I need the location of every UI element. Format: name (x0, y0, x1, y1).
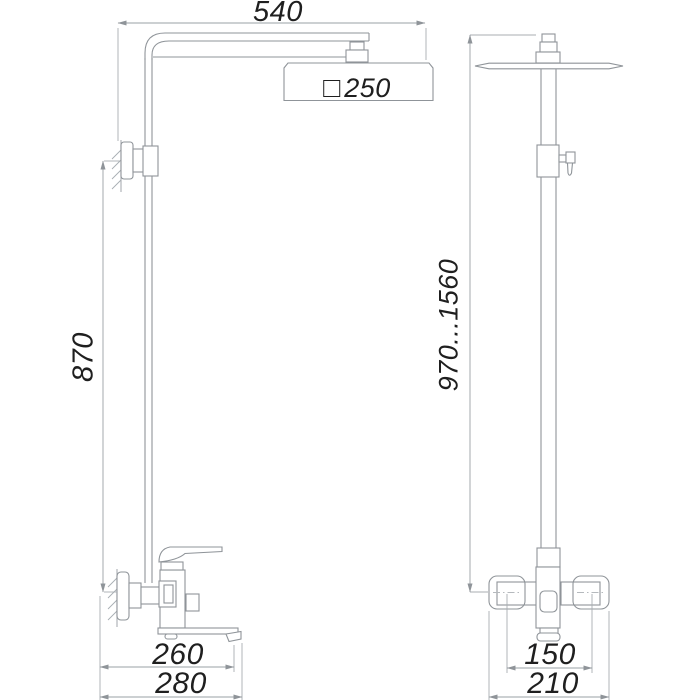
side-riser-pipe (541, 63, 556, 548)
dim-label-column-height: 870 (70, 332, 99, 382)
dim-label-centers-distance: 150 (524, 640, 576, 670)
front-shower-arm (145, 33, 369, 60)
front-lower-wall-plate (108, 569, 161, 627)
dim-label-spout-reach: 260 (152, 640, 204, 670)
square-symbol-icon (323, 80, 340, 97)
wall-hatching-lower (108, 578, 117, 620)
wall-hatching (112, 150, 121, 189)
handle-collar (161, 562, 183, 570)
side-view (475, 34, 623, 641)
body-button (540, 591, 557, 612)
mixer-base-plate (158, 628, 238, 634)
technical-drawing-canvas: 540 250 870 260 280 970...1560 150 210 (0, 0, 700, 700)
side-head-connector (536, 34, 560, 63)
pipe-sleeve (537, 548, 560, 567)
shower-column-drawing (0, 0, 700, 700)
dim-label-height-range: 970...1560 (436, 259, 463, 392)
dimension-870 (103, 161, 120, 592)
diverter-knob (566, 152, 575, 163)
front-riser-pipe (145, 58, 152, 583)
dim-label-top-width: 540 (253, 0, 303, 27)
diverter-knob-front (186, 594, 199, 611)
front-wall-bracket (112, 140, 158, 192)
dim-label-head-size: 250 (323, 75, 391, 102)
side-shower-head (475, 63, 623, 69)
diverter-lever (568, 163, 573, 175)
front-view (108, 33, 433, 642)
dim-label-overall-depth: 280 (155, 669, 207, 699)
mixer-clamp-inner (164, 585, 173, 603)
dimension-970-1560 (470, 35, 536, 592)
dim-label-head-size-value: 250 (344, 75, 391, 102)
dim-label-mixer-width: 210 (527, 669, 579, 699)
front-head-connector (346, 42, 368, 62)
side-diverter (537, 145, 575, 177)
front-mixer (158, 547, 241, 642)
mixer-handle (159, 547, 222, 562)
diverter-stem (559, 155, 566, 162)
